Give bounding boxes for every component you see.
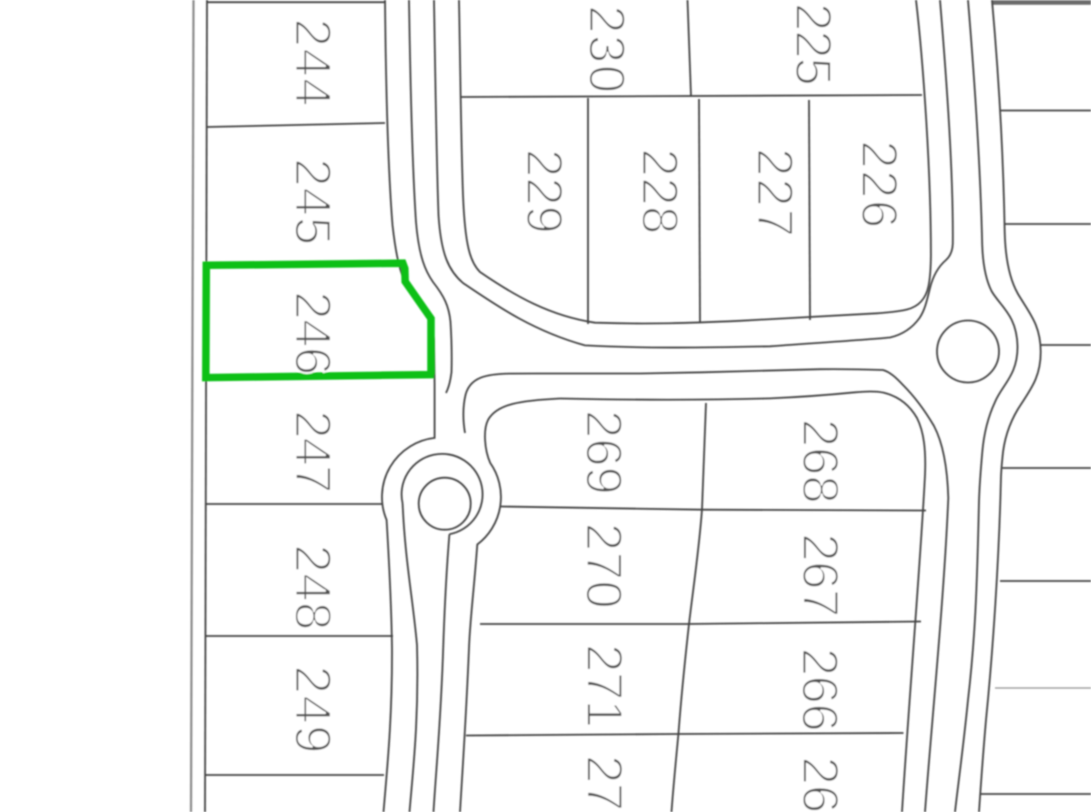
svg-text:226: 226 [851,140,908,228]
svg-text:271: 271 [576,644,633,728]
svg-text:266: 266 [792,648,849,732]
svg-text:249: 249 [285,666,342,754]
svg-text:272: 272 [576,755,633,812]
svg-text:268: 268 [792,419,849,504]
svg-text:269: 269 [576,410,633,495]
svg-text:248: 248 [285,544,342,630]
svg-text:228: 228 [632,148,689,234]
svg-text:227: 227 [747,148,804,237]
svg-text:230: 230 [579,5,636,93]
svg-text:267: 267 [792,533,849,617]
svg-text:265: 265 [792,757,849,812]
svg-text:229: 229 [516,149,573,234]
svg-text:246: 246 [285,291,342,375]
svg-text:270: 270 [576,523,633,609]
svg-text:247: 247 [285,410,342,493]
svg-text:245: 245 [285,158,342,245]
svg-text:225: 225 [785,3,842,86]
svg-text:244: 244 [285,19,342,107]
